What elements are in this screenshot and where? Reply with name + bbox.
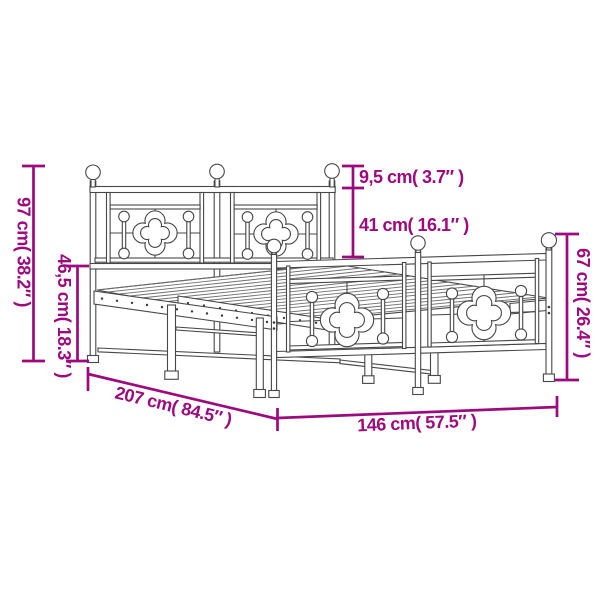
spindle-ball (242, 212, 253, 223)
ball-finial (267, 239, 281, 253)
dim-label-footboard-height: 67 cm( 26.4″ ) (573, 248, 593, 358)
spindle-ball (302, 212, 313, 223)
spindle (310, 300, 313, 338)
spindle-ball (306, 335, 317, 346)
footboard-inner-rail (430, 273, 538, 280)
headboard-post-foot (88, 356, 99, 363)
headboard-panel-bar (231, 193, 235, 264)
leg-foot (165, 371, 178, 379)
spindle (519, 295, 522, 332)
leg-foot (428, 376, 440, 384)
spindle (306, 220, 309, 251)
footboard-post-center (415, 251, 420, 394)
headboard-panel-bar (317, 193, 321, 264)
spindle-ball (183, 248, 194, 259)
leg-foot (363, 376, 374, 384)
footboard-panel-bar (287, 266, 290, 352)
headboard-panel-bar (200, 193, 204, 264)
dim-label-length: 207 cm( 84.5″ ) (113, 383, 234, 430)
ball-finial (411, 236, 425, 250)
headboard-panel-bar (107, 193, 111, 264)
support-leg (168, 305, 176, 373)
headboard-post-left (90, 181, 96, 362)
spindle-ball (446, 288, 457, 299)
spindle-ball (515, 329, 526, 340)
dimension-diagram: 97 cm( 38.2″ ) 46,5 cm( 18.3″ ) 9,5 cm( … (0, 0, 600, 600)
spindle-ball (183, 211, 194, 222)
support-leg (256, 318, 263, 391)
spindle-ball (446, 331, 457, 342)
headboard-inner-rail (234, 205, 317, 209)
spindle (381, 298, 384, 336)
footboard-post-foot (269, 391, 279, 398)
dim-label-width: 146 cm( 57.5″ ) (357, 411, 477, 436)
headboard-top-rail (90, 187, 335, 193)
bolt (273, 321, 276, 324)
leg-foot (254, 390, 266, 398)
dim-label-headboard-panel: 41 cm( 16.1″ ) (359, 215, 469, 235)
dim-label-finial-section: 9,5 cm( 3.7″ ) (359, 167, 464, 187)
spindle-ball (242, 249, 253, 260)
finial-neck (330, 178, 334, 187)
brace (340, 360, 436, 375)
ball-finial (325, 164, 340, 179)
spindle-ball (302, 249, 313, 260)
spindle-ball (515, 285, 526, 296)
bed-frame-diagram-svg: 97 cm( 38.2″ ) 46,5 cm( 18.3″ ) 9,5 cm( … (0, 0, 600, 600)
footboard-post-foot (543, 374, 554, 382)
spindle (187, 219, 190, 252)
dim-label-headboard-height: 97 cm( 38.2″ ) (14, 197, 34, 307)
footboard-panel-bar (535, 259, 538, 344)
bed-frame-drawing (86, 164, 557, 398)
ball-finial (86, 165, 101, 180)
footboard-post-foot (413, 388, 424, 395)
ball-finial (210, 164, 225, 179)
footboard-post-far (271, 252, 276, 397)
headboard-inner-rail (110, 205, 200, 209)
spindle-ball (306, 291, 317, 302)
spindle (246, 220, 249, 251)
quatrefoil-ornament (133, 211, 177, 255)
footboard-panel-bar (428, 262, 431, 347)
spindle-ball (119, 248, 130, 259)
spindle-ball (377, 288, 388, 299)
support-leg (431, 350, 439, 377)
finial-neck (215, 178, 219, 187)
spindle-ball (377, 333, 388, 344)
spindle (450, 297, 453, 334)
spindle (122, 219, 125, 252)
dim-label-platform-height: 46,5 cm( 18.3″ ) (54, 254, 74, 378)
spindle-ball (119, 211, 130, 222)
bolt (273, 327, 276, 330)
footboard-post-near (546, 249, 552, 382)
footboard-panel-bar (403, 263, 406, 349)
support-leg (365, 352, 372, 377)
bolt (548, 306, 551, 309)
ball-finial (541, 233, 556, 248)
bolt (548, 312, 551, 315)
